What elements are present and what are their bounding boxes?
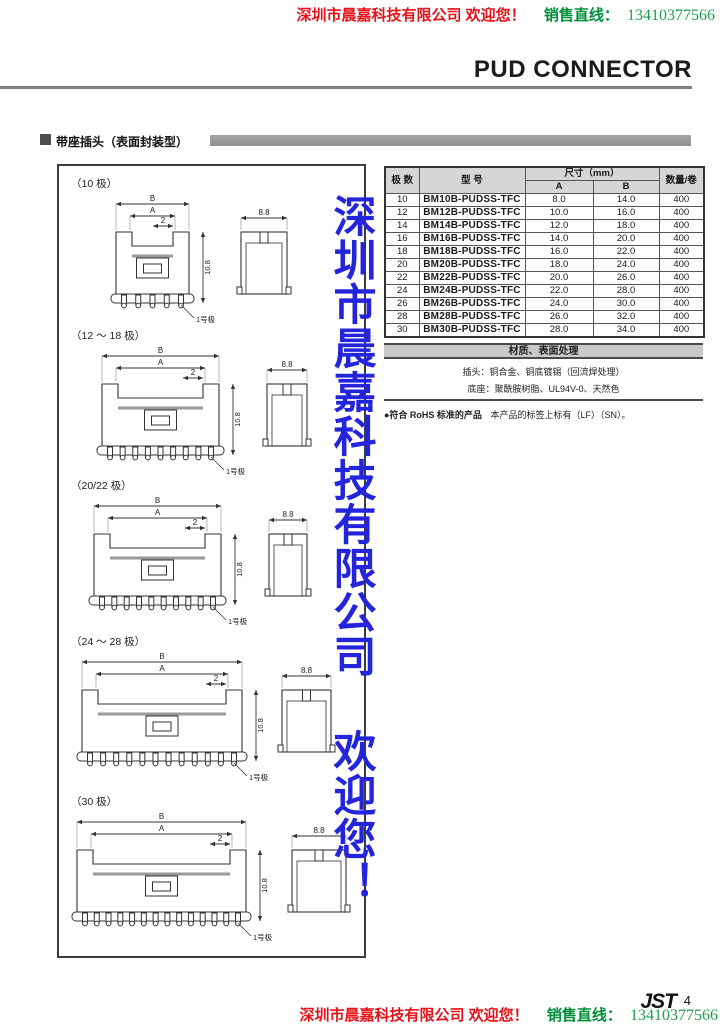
table-cell: 20.0: [525, 272, 593, 285]
svg-text:A: A: [159, 664, 165, 673]
drawing-group-10p: （10 极） BA210.81号极8.8: [63, 176, 365, 337]
svg-text:1号极: 1号极: [253, 932, 273, 942]
table-row: 24BM24B-PUDSS-TFC22.028.0400: [385, 285, 704, 298]
drawing-group-label: （12 ～ 18 极）: [71, 328, 365, 343]
col-header-dim: 尺寸（mm）: [525, 167, 659, 181]
table-cell: 10: [385, 194, 419, 207]
drawings-box: （10 极） BA210.81号极8.8 （12 ～ 18 极） BA210.8…: [57, 164, 366, 958]
table-cell: 8.0: [525, 194, 593, 207]
table-cell: 24.0: [525, 298, 593, 311]
table-row: 26BM26B-PUDSS-TFC24.030.0400: [385, 298, 704, 311]
table-cell: 18.0: [593, 220, 659, 233]
svg-text:8.8: 8.8: [258, 208, 270, 217]
table-cell: 14.0: [593, 194, 659, 207]
material-line-plug: 插头：铜合金、铜底镀锡（回流焊处理）: [384, 365, 703, 378]
svg-text:2: 2: [191, 368, 196, 377]
table-cell: 18.0: [525, 259, 593, 272]
table-cell: BM10B-PUDSS-TFC: [419, 194, 525, 207]
svg-text:1号极: 1号极: [226, 466, 246, 476]
top-sales-label: 销售直线：: [544, 7, 619, 24]
section-square-icon: [40, 134, 51, 145]
table-cell: BM12B-PUDSS-TFC: [419, 207, 525, 220]
table-cell: BM28B-PUDSS-TFC: [419, 311, 525, 324]
spec-table-body: 10BM10B-PUDSS-TFC8.014.040012BM12B-PUDSS…: [385, 194, 704, 338]
table-row: 20BM20B-PUDSS-TFC18.024.0400: [385, 259, 704, 272]
table-cell: 12: [385, 207, 419, 220]
table-cell: 400: [659, 194, 704, 207]
table-row: 28BM28B-PUDSS-TFC26.032.0400: [385, 311, 704, 324]
svg-text:8.8: 8.8: [301, 666, 313, 675]
table-cell: 34.0: [593, 324, 659, 338]
table-cell: 16.0: [525, 246, 593, 259]
col-header-b: B: [593, 181, 659, 194]
table-row: 22BM22B-PUDSS-TFC20.026.0400: [385, 272, 704, 285]
svg-text:8.8: 8.8: [313, 826, 325, 835]
svg-text:2: 2: [193, 518, 198, 527]
top-phone-number: 13410377566: [627, 7, 715, 24]
section-header-bar: [210, 135, 691, 146]
svg-text:B: B: [150, 194, 155, 203]
table-cell: 400: [659, 311, 704, 324]
svg-text:10.8: 10.8: [256, 718, 265, 733]
table-cell: 16: [385, 233, 419, 246]
table-cell: 400: [659, 233, 704, 246]
table-cell: 400: [659, 285, 704, 298]
rohs-note: ●符合 RoHS 标准的产品 本产品的标签上标有（LF）（SN）。: [384, 408, 703, 421]
connector-drawing: BA210.81号极8.8: [63, 192, 365, 337]
drawing-group-30p: （30 极） BA210.81号极8.8: [63, 794, 365, 955]
table-cell: 10.0: [525, 207, 593, 220]
material-line-base: 底座：聚酰胺树脂、UL94V-0、天然色: [384, 382, 703, 395]
table-cell: 400: [659, 324, 704, 338]
svg-text:B: B: [159, 812, 164, 821]
section-title: 带座插头（表面封装型）: [56, 133, 188, 150]
table-row: 12BM12B-PUDSS-TFC10.016.0400: [385, 207, 704, 220]
table-row: 18BM18B-PUDSS-TFC16.022.0400: [385, 246, 704, 259]
title-rule: [0, 86, 692, 89]
drawing-group-label: （20/22 极）: [71, 478, 365, 493]
table-cell: 28: [385, 311, 419, 324]
table-cell: 30.0: [593, 298, 659, 311]
top-promo-line: 深圳市晨嘉科技有限公司 欢迎您！ 销售直线： 13410377566: [296, 4, 715, 25]
svg-text:1号极: 1号极: [196, 314, 216, 324]
spec-table: 极 数 型 号 尺寸（mm） 数量/卷 A B 10BM10B-PUDSS-TF…: [384, 166, 705, 338]
svg-text:B: B: [155, 496, 160, 505]
svg-text:1号极: 1号极: [228, 616, 248, 626]
table-cell: 22: [385, 272, 419, 285]
table-cell: 400: [659, 220, 704, 233]
svg-text:B: B: [159, 652, 164, 661]
svg-text:A: A: [155, 508, 161, 517]
drawing-group-24-28p: （24 ～ 28 极） BA210.81号极8.8: [63, 634, 365, 795]
drawing-group-label: （10 极）: [71, 176, 365, 191]
table-cell: 16.0: [593, 207, 659, 220]
table-cell: 20.0: [593, 233, 659, 246]
table-cell: BM22B-PUDSS-TFC: [419, 272, 525, 285]
col-header-a: A: [525, 181, 593, 194]
svg-text:A: A: [159, 824, 165, 833]
table-cell: 400: [659, 246, 704, 259]
table-cell: 14.0: [525, 233, 593, 246]
bottom-phone-number: 13410377566: [630, 1007, 718, 1024]
col-header-qty: 数量/卷: [659, 167, 704, 194]
svg-text:10.8: 10.8: [260, 878, 269, 893]
table-cell: 26: [385, 298, 419, 311]
table-cell: 22.0: [593, 246, 659, 259]
drawing-group-12-18p: （12 ～ 18 极） BA210.81号极8.8: [63, 328, 365, 489]
svg-text:2: 2: [161, 216, 166, 225]
table-cell: 400: [659, 259, 704, 272]
table-cell: BM30B-PUDSS-TFC: [419, 324, 525, 338]
table-cell: 400: [659, 272, 704, 285]
table-row: 30BM30B-PUDSS-TFC28.034.0400: [385, 324, 704, 338]
table-cell: 30: [385, 324, 419, 338]
bottom-sales-label: 销售直线：: [547, 1007, 622, 1024]
rohs-note-rest: 本产品的标签上标有（LF）（SN）。: [490, 410, 630, 420]
material-header: 材质、表面处理: [384, 343, 703, 359]
table-row: 16BM16B-PUDSS-TFC14.020.0400: [385, 233, 704, 246]
table-cell: 28.0: [525, 324, 593, 338]
table-cell: BM14B-PUDSS-TFC: [419, 220, 525, 233]
table-cell: BM20B-PUDSS-TFC: [419, 259, 525, 272]
col-header-pins: 极 数: [385, 167, 419, 194]
table-cell: 14: [385, 220, 419, 233]
svg-text:2: 2: [214, 674, 219, 683]
svg-text:10.8: 10.8: [203, 260, 212, 275]
drawing-group-label: （24 ～ 28 极）: [71, 634, 365, 649]
svg-text:10.8: 10.8: [235, 562, 244, 577]
svg-text:8.8: 8.8: [282, 510, 294, 519]
table-cell: 32.0: [593, 311, 659, 324]
table-cell: BM26B-PUDSS-TFC: [419, 298, 525, 311]
svg-text:1号极: 1号极: [249, 772, 269, 782]
table-row: 14BM14B-PUDSS-TFC12.018.0400: [385, 220, 704, 233]
svg-text:2: 2: [218, 834, 223, 843]
svg-text:B: B: [158, 346, 163, 355]
material-divider: [384, 399, 703, 401]
connector-drawing: BA210.81号极8.8: [63, 344, 365, 489]
table-cell: 24.0: [593, 259, 659, 272]
connector-drawing: BA210.81号极8.8: [63, 650, 365, 795]
table-cell: BM16B-PUDSS-TFC: [419, 233, 525, 246]
col-header-model: 型 号: [419, 167, 525, 194]
rohs-note-bold: ●符合 RoHS 标准的产品: [384, 410, 482, 420]
table-cell: 400: [659, 207, 704, 220]
page-title: PUD CONNECTOR: [474, 56, 692, 84]
table-cell: BM24B-PUDSS-TFC: [419, 285, 525, 298]
svg-text:8.8: 8.8: [281, 360, 293, 369]
table-cell: 24: [385, 285, 419, 298]
drawing-group-20-22p: （20/22 极） BA210.81号极8.8: [63, 478, 365, 639]
table-cell: 22.0: [525, 285, 593, 298]
drawing-group-label: （30 极）: [71, 794, 365, 809]
datasheet-page: 深圳市晨嘉科技有限公司 欢迎您！ 销售直线： 13410377566 PUD C…: [0, 0, 723, 1024]
table-row: 10BM10B-PUDSS-TFC8.014.0400: [385, 194, 704, 207]
material-section: 材质、表面处理 插头：铜合金、铜底镀锡（回流焊处理） 底座：聚酰胺树脂、UL94…: [384, 343, 703, 421]
svg-text:10.8: 10.8: [233, 412, 242, 427]
table-cell: 20: [385, 259, 419, 272]
connector-drawing: BA210.81号极8.8: [63, 494, 365, 639]
connector-drawing: BA210.81号极8.8: [63, 810, 365, 955]
bottom-company-text: 深圳市晨嘉科技有限公司 欢迎您！: [299, 1007, 528, 1024]
top-company-text: 深圳市晨嘉科技有限公司 欢迎您！: [296, 7, 525, 24]
svg-text:A: A: [158, 358, 164, 367]
table-cell: 400: [659, 298, 704, 311]
svg-text:A: A: [150, 206, 156, 215]
table-cell: 26.0: [593, 272, 659, 285]
table-cell: BM18B-PUDSS-TFC: [419, 246, 525, 259]
bottom-promo-line: 深圳市晨嘉科技有限公司 欢迎您！ 销售直线： 13410377566: [299, 1004, 718, 1024]
watermark-text: 深圳市晨嘉科技有限公司 欢迎您！: [329, 194, 372, 964]
table-cell: 18: [385, 246, 419, 259]
table-cell: 26.0: [525, 311, 593, 324]
table-cell: 28.0: [593, 285, 659, 298]
table-cell: 12.0: [525, 220, 593, 233]
